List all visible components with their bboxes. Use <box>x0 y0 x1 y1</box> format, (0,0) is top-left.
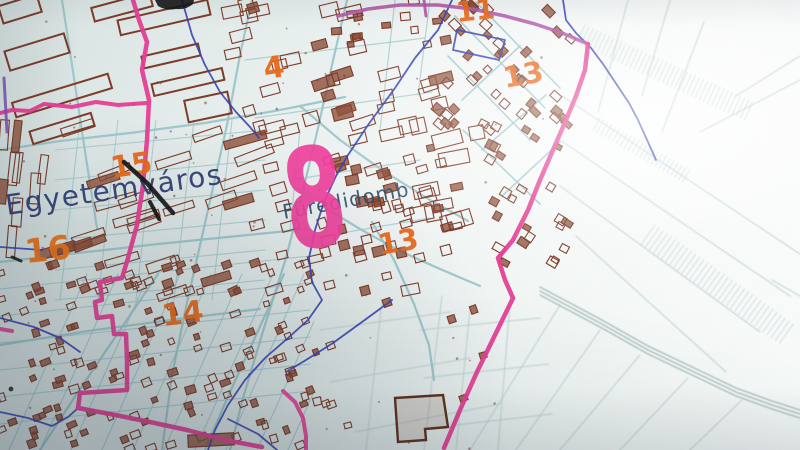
map-photo: Egyetemváros Füredidomb 15 16 14 4 11 13… <box>0 0 800 450</box>
map-canvas: Egyetemváros Füredidomb 15 16 14 4 11 13… <box>0 0 800 450</box>
paper-grain <box>0 0 800 450</box>
